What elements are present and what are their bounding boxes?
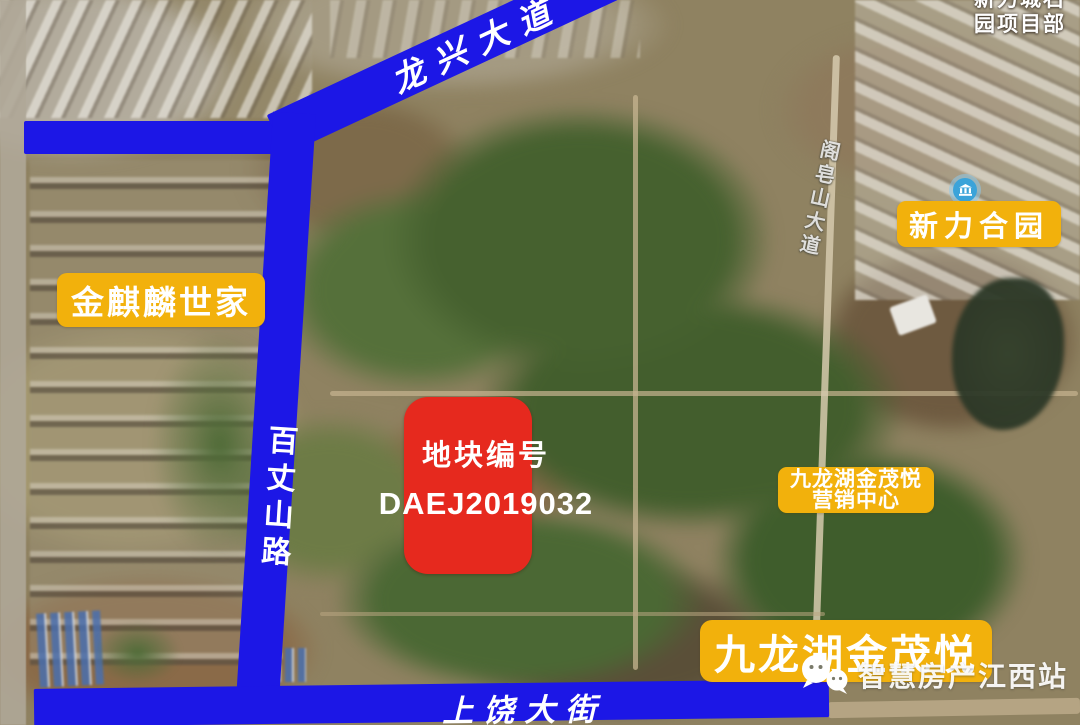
road-label-shangrao: 上饶大街 (442, 684, 607, 725)
basemap-dirt-road (320, 612, 825, 616)
place-label-jinqilin: 金麒麟世家 (57, 273, 265, 327)
parcel-caption: 地块编号 DAEJ2019032 (356, 432, 616, 522)
road-highlight-longxing-west (24, 121, 290, 154)
parcel-label: 地块编号 (356, 432, 616, 474)
satellite-basemap (0, 0, 1080, 725)
watermark: 智慧房产江西站 (799, 654, 1068, 696)
corner-project-text-line1: 新力城石 (974, 0, 1066, 12)
place-label-xinli-heyuan: 新力合园 (897, 201, 1061, 247)
corner-project-text-line2: 园项目部 (974, 12, 1066, 37)
place-label-sales-center-line1: 九龙湖金茂悦 (778, 469, 934, 490)
basemap-road-left (0, 0, 26, 725)
building-cluster-top-left (0, 0, 312, 118)
parcel-code: DAEJ2019032 (356, 486, 616, 522)
building-poi-icon-circle (953, 178, 977, 202)
place-label-sales-center-line2: 营销中心 (778, 490, 934, 511)
place-label-sales-center: 九龙湖金茂悦 营销中心 (778, 467, 934, 513)
blue-roof-buildings (36, 610, 104, 687)
building-cluster-right (855, 0, 1080, 300)
satellite-map-annotation: 阁皂山大道 龙兴大道 百丈山路 上饶大街 金麒麟世家 新力合园 九龙湖金茂悦 营… (0, 0, 1080, 725)
wechat-bubbles-icon (799, 654, 851, 696)
basemap-dirt-road (633, 95, 638, 670)
watermark-text: 智慧房产江西站 (858, 655, 1068, 695)
corner-project-text: 新力城石 园项目部 (974, 0, 1066, 37)
greenery-patch (95, 622, 180, 684)
